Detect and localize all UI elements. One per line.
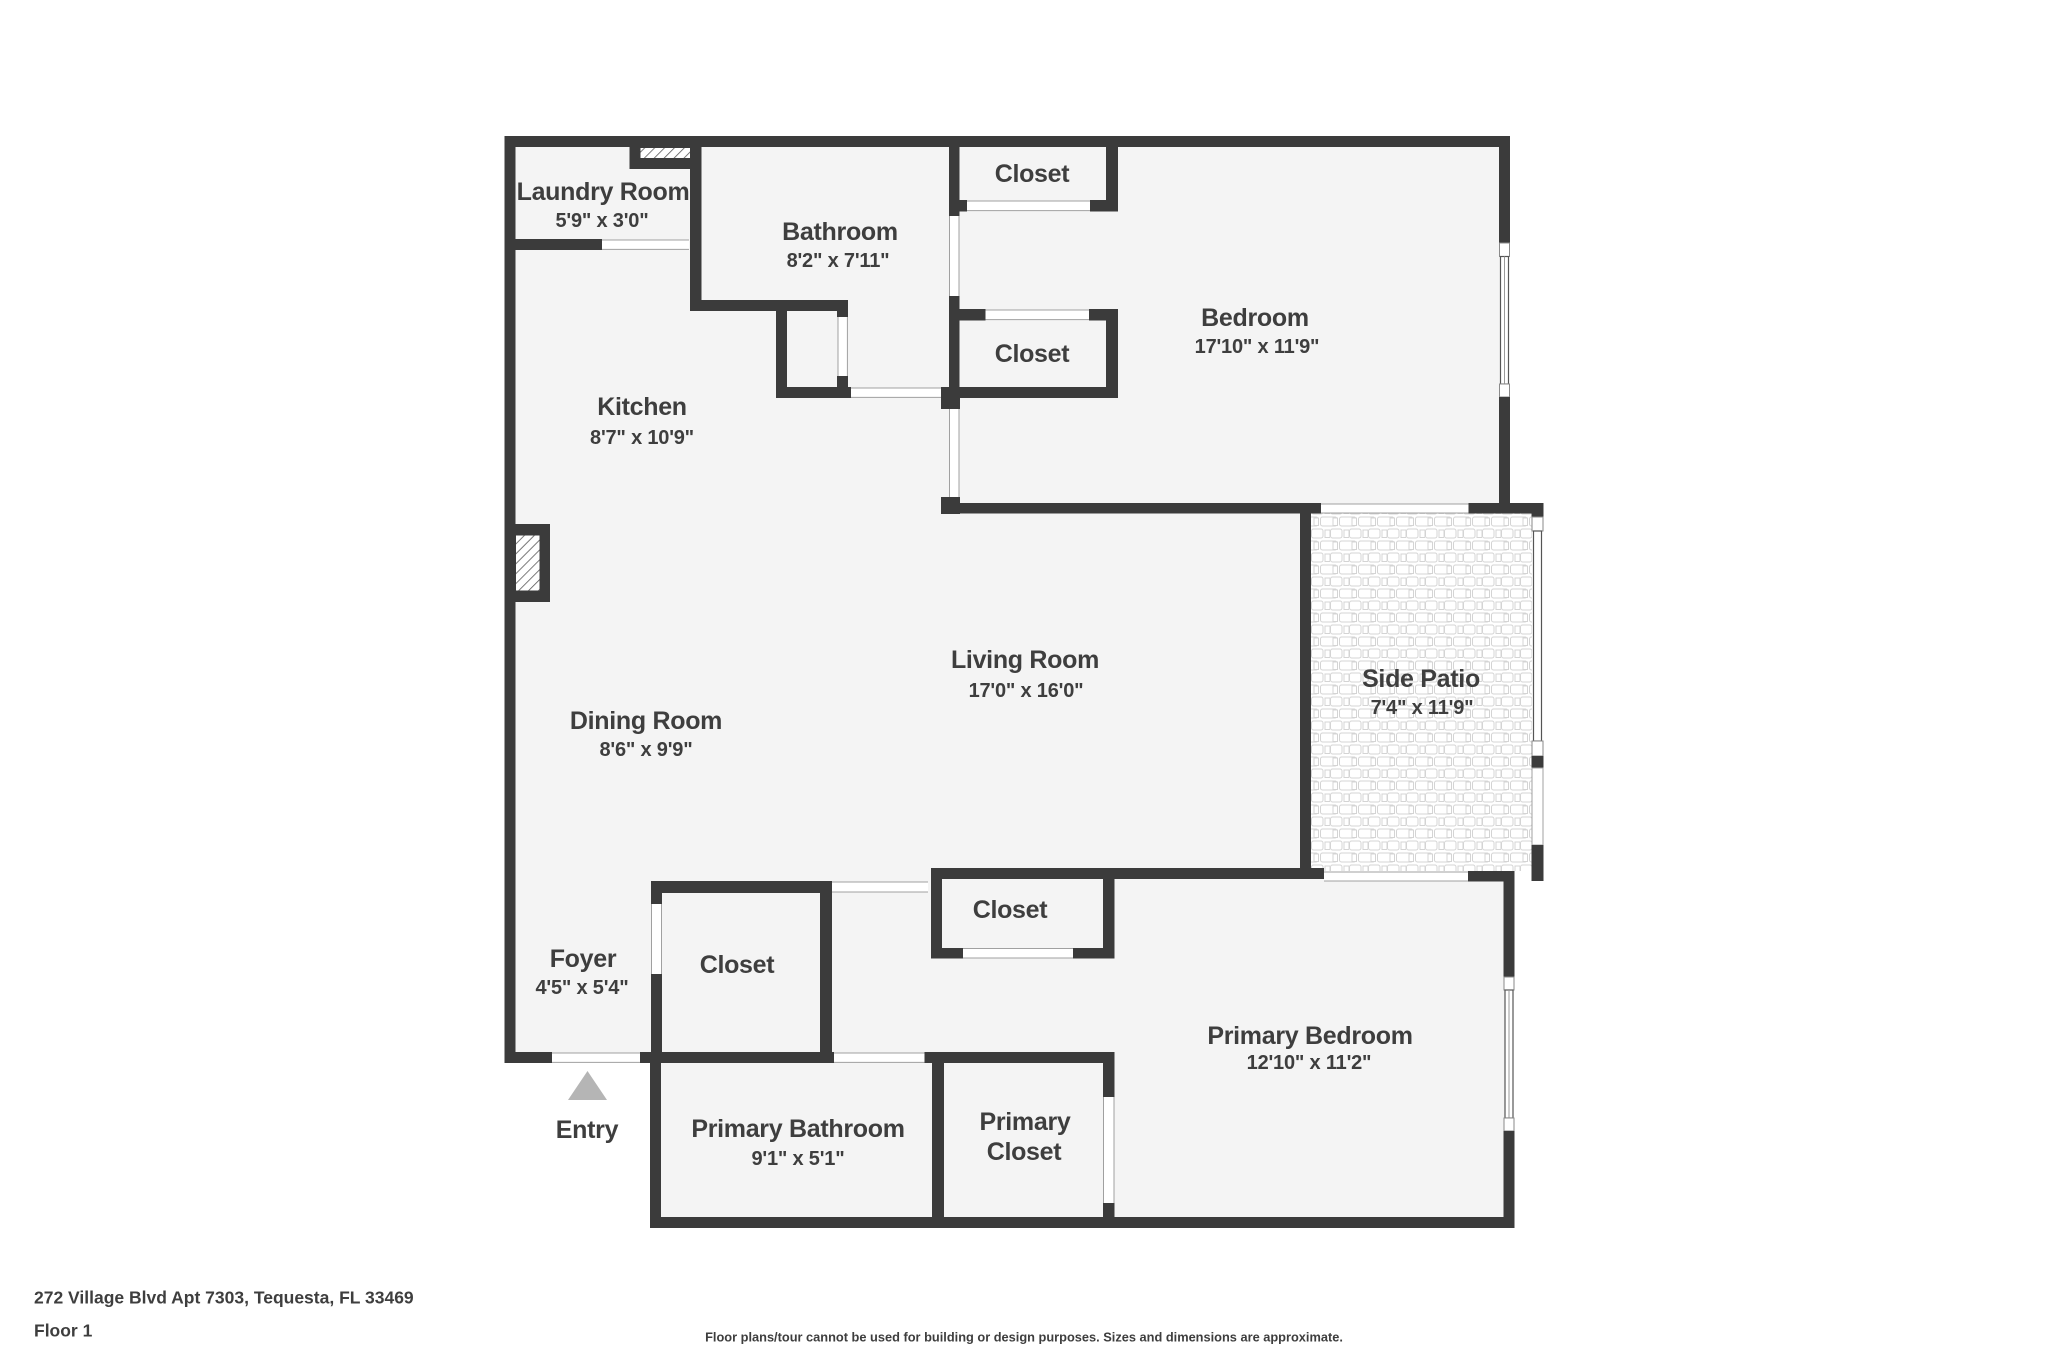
- svg-text:17'10" x 11'9": 17'10" x 11'9": [1195, 336, 1320, 358]
- svg-text:9'1" x 5'1": 9'1" x 5'1": [751, 1148, 844, 1170]
- svg-text:8'7" x 10'9": 8'7" x 10'9": [590, 427, 694, 449]
- svg-text:Primary Bathroom: Primary Bathroom: [691, 1115, 904, 1143]
- svg-text:Closet: Closet: [995, 340, 1071, 368]
- svg-text:5'9" x 3'0": 5'9" x 3'0": [555, 210, 648, 232]
- svg-text:7'4" x 11'9": 7'4" x 11'9": [1371, 697, 1474, 719]
- svg-text:Bedroom: Bedroom: [1201, 304, 1309, 332]
- svg-text:Closet: Closet: [995, 160, 1071, 188]
- svg-text:Bathroom: Bathroom: [782, 218, 898, 246]
- svg-text:12'10" x 11'2": 12'10" x 11'2": [1247, 1052, 1372, 1074]
- svg-text:Closet: Closet: [700, 951, 776, 979]
- svg-text:Living Room: Living Room: [951, 646, 1099, 674]
- svg-text:Closet: Closet: [987, 1138, 1063, 1166]
- svg-text:272 Village Blvd Apt 7303, Teq: 272 Village Blvd Apt 7303, Tequesta, FL …: [34, 1288, 414, 1308]
- svg-text:Kitchen: Kitchen: [597, 393, 687, 421]
- svg-text:8'2" x 7'11": 8'2" x 7'11": [787, 250, 890, 272]
- svg-text:4'5" x 5'4": 4'5" x 5'4": [535, 977, 628, 999]
- svg-text:Primary Bedroom: Primary Bedroom: [1207, 1022, 1412, 1050]
- svg-text:Floor 1: Floor 1: [34, 1321, 93, 1341]
- svg-text:Primary: Primary: [979, 1108, 1070, 1136]
- svg-text:Closet: Closet: [973, 896, 1049, 924]
- svg-text:Floor plans/tour cannot be use: Floor plans/tour cannot be used for buil…: [705, 1330, 1343, 1345]
- svg-text:Entry: Entry: [556, 1116, 619, 1144]
- svg-text:Side Patio: Side Patio: [1362, 665, 1480, 693]
- svg-text:Dining Room: Dining Room: [570, 707, 722, 735]
- svg-text:17'0" x 16'0": 17'0" x 16'0": [969, 680, 1084, 702]
- svg-text:8'6" x 9'9": 8'6" x 9'9": [599, 739, 692, 761]
- svg-text:Foyer: Foyer: [550, 945, 617, 973]
- svg-text:Laundry Room: Laundry Room: [517, 178, 690, 206]
